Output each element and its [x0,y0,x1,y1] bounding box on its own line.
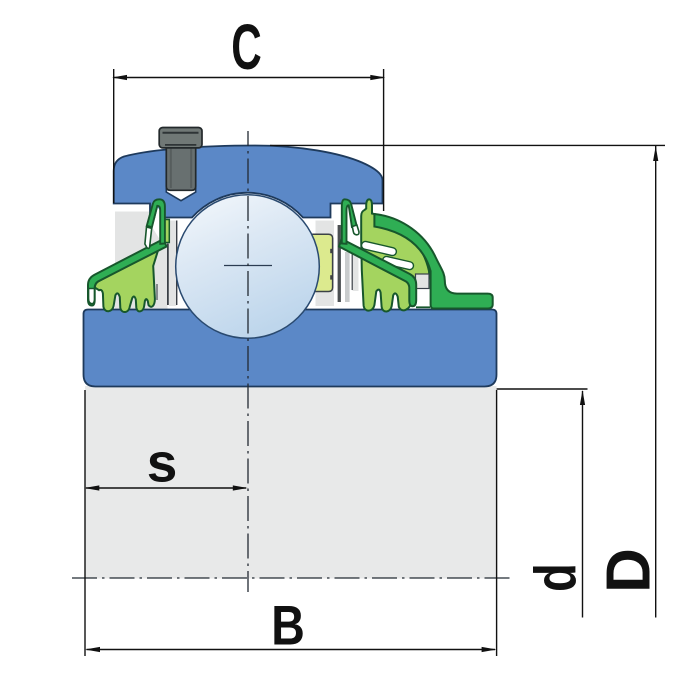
svg-text:B: B [271,593,305,656]
svg-text:C: C [231,12,262,83]
svg-text:d: d [524,563,589,592]
svg-text:s: s [147,432,178,494]
svg-text:D: D [595,548,664,593]
